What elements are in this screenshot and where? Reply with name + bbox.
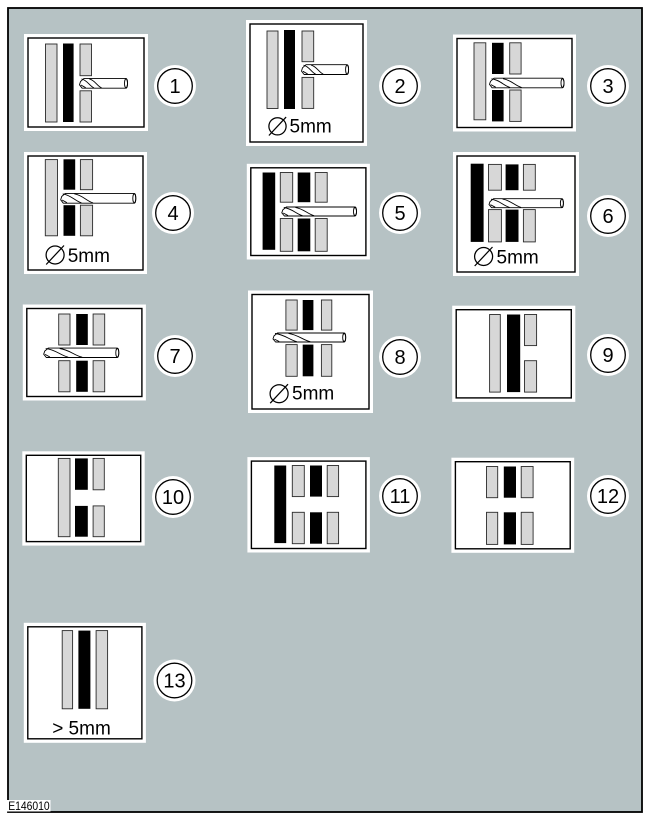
svg-text:1: 1 xyxy=(169,76,180,98)
svg-text:> 5mm: > 5mm xyxy=(52,719,111,740)
svg-text:10: 10 xyxy=(162,487,184,509)
svg-text:6: 6 xyxy=(602,206,613,228)
svg-text:8: 8 xyxy=(394,347,405,369)
svg-text:3: 3 xyxy=(602,76,613,98)
svg-text:13: 13 xyxy=(163,671,185,693)
svg-text:7: 7 xyxy=(169,346,180,368)
svg-text:5mm: 5mm xyxy=(497,248,539,269)
svg-text:11: 11 xyxy=(390,486,411,508)
svg-text:5mm: 5mm xyxy=(290,116,332,137)
svg-text:12: 12 xyxy=(597,486,619,508)
svg-text:E146010: E146010 xyxy=(8,799,50,813)
svg-text:5mm: 5mm xyxy=(68,246,110,267)
svg-text:9: 9 xyxy=(602,345,613,367)
svg-text:2: 2 xyxy=(394,76,405,98)
svg-text:5: 5 xyxy=(394,203,405,225)
svg-text:5mm: 5mm xyxy=(292,384,334,405)
svg-text:4: 4 xyxy=(167,203,178,225)
